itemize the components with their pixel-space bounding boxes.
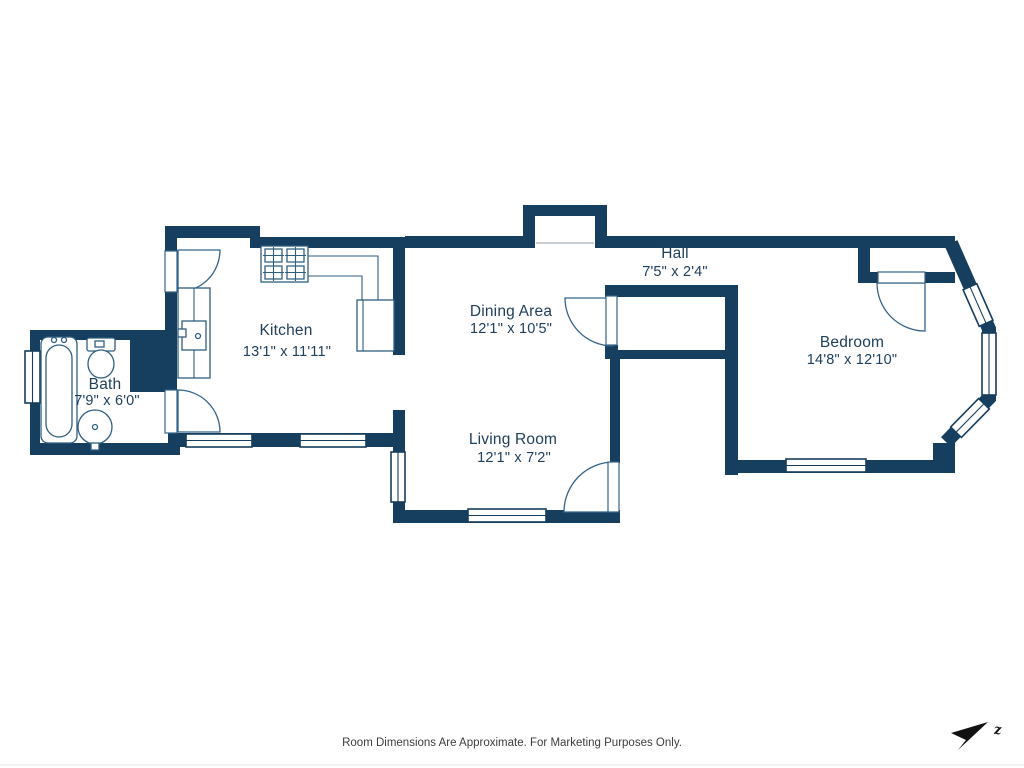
door [564, 462, 619, 512]
bedroom-dims: 14'8" x 12'10" [807, 352, 897, 368]
wall-segment [165, 226, 260, 238]
bedroom-label: Bedroom [820, 334, 884, 351]
door [565, 296, 617, 346]
door-swing [564, 462, 614, 512]
hall-label: Hall [661, 245, 689, 262]
door [165, 390, 220, 433]
door [877, 272, 925, 331]
wall-segment [393, 248, 405, 355]
wall-segment [610, 353, 620, 463]
kitchen-dims: 13'1" x 11'11" [243, 344, 331, 360]
wall-segment [130, 330, 177, 392]
wall-segment [924, 272, 955, 283]
bay-window [982, 333, 996, 395]
window [25, 351, 40, 403]
bath-label: Bath [89, 376, 122, 393]
living-label: Living Room [469, 431, 557, 448]
bay-window [963, 284, 993, 327]
window [786, 459, 866, 472]
bathtub-icon [41, 337, 77, 443]
wall-segment [595, 236, 955, 248]
wall-segment [393, 410, 405, 455]
compass-label: z [993, 723, 1002, 738]
wall-segment [523, 205, 607, 216]
wall-segment [608, 350, 738, 359]
window [300, 434, 366, 447]
bath-dims: 7'9" x 6'0" [74, 393, 140, 409]
wall-segment [605, 285, 738, 297]
wall-segment [858, 272, 880, 283]
north-arrow-icon [951, 722, 988, 750]
compass: z [951, 722, 1002, 750]
door [165, 250, 220, 292]
window [186, 434, 252, 447]
refrigerator-icon [357, 300, 394, 351]
door-swing [877, 283, 925, 331]
floor-plan-page: Bath 7'9" x 6'0" Kitchen 13'1" x 11'11" … [0, 0, 1024, 768]
stove-icon [261, 246, 308, 282]
door-leaf [165, 251, 177, 292]
door-leaf [165, 390, 177, 433]
window [468, 509, 546, 522]
hall-dims: 7'5" x 2'4" [642, 264, 708, 280]
living-dims: 12'1" x 7'2" [477, 450, 551, 466]
toilet-icon [87, 338, 115, 378]
wall-segment [30, 443, 180, 455]
kitchen-label: Kitchen [259, 322, 312, 339]
wall-segment [165, 292, 177, 334]
door-leaf [608, 462, 619, 512]
door-swing [178, 250, 220, 292]
dining-dims: 12'1" x 10'5" [470, 321, 552, 337]
dining-label: Dining Area [470, 303, 553, 320]
door-leaf [878, 272, 925, 283]
door-swing [178, 390, 220, 432]
floor-plan: Bath 7'9" x 6'0" Kitchen 13'1" x 11'11" … [0, 0, 1024, 768]
window [391, 452, 405, 502]
kitchen-sink-icon [178, 321, 206, 350]
wall-segment [725, 285, 738, 475]
door-leaf [606, 296, 617, 345]
counter-edge [308, 256, 378, 300]
bay-window [951, 398, 990, 437]
wall-segment [933, 443, 955, 473]
wall-segment [405, 236, 525, 248]
disclaimer-text: Room Dimensions Are Approximate. For Mar… [342, 737, 682, 749]
